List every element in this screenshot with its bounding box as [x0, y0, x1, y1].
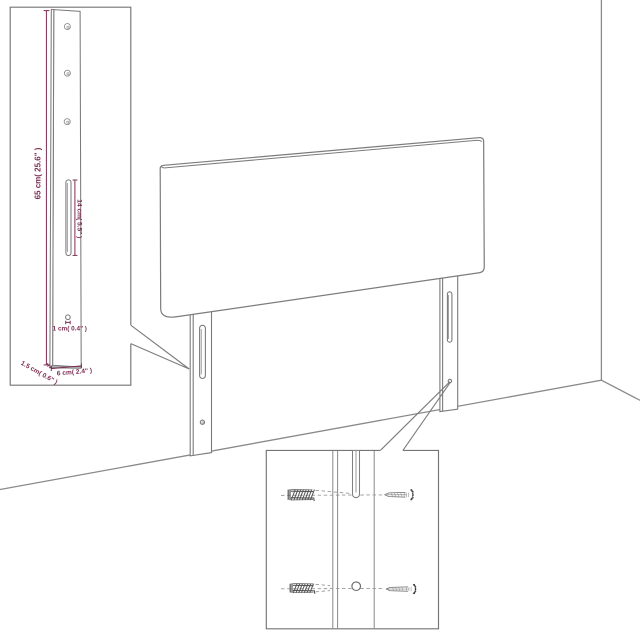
svg-text:1 cm( 0.4" ): 1 cm( 0.4" ) [53, 325, 87, 332]
svg-text:14 cm( 5.5" ): 14 cm( 5.5" ) [75, 199, 82, 238]
svg-text:65 cm( 25.6" ): 65 cm( 25.6" ) [34, 147, 43, 199]
